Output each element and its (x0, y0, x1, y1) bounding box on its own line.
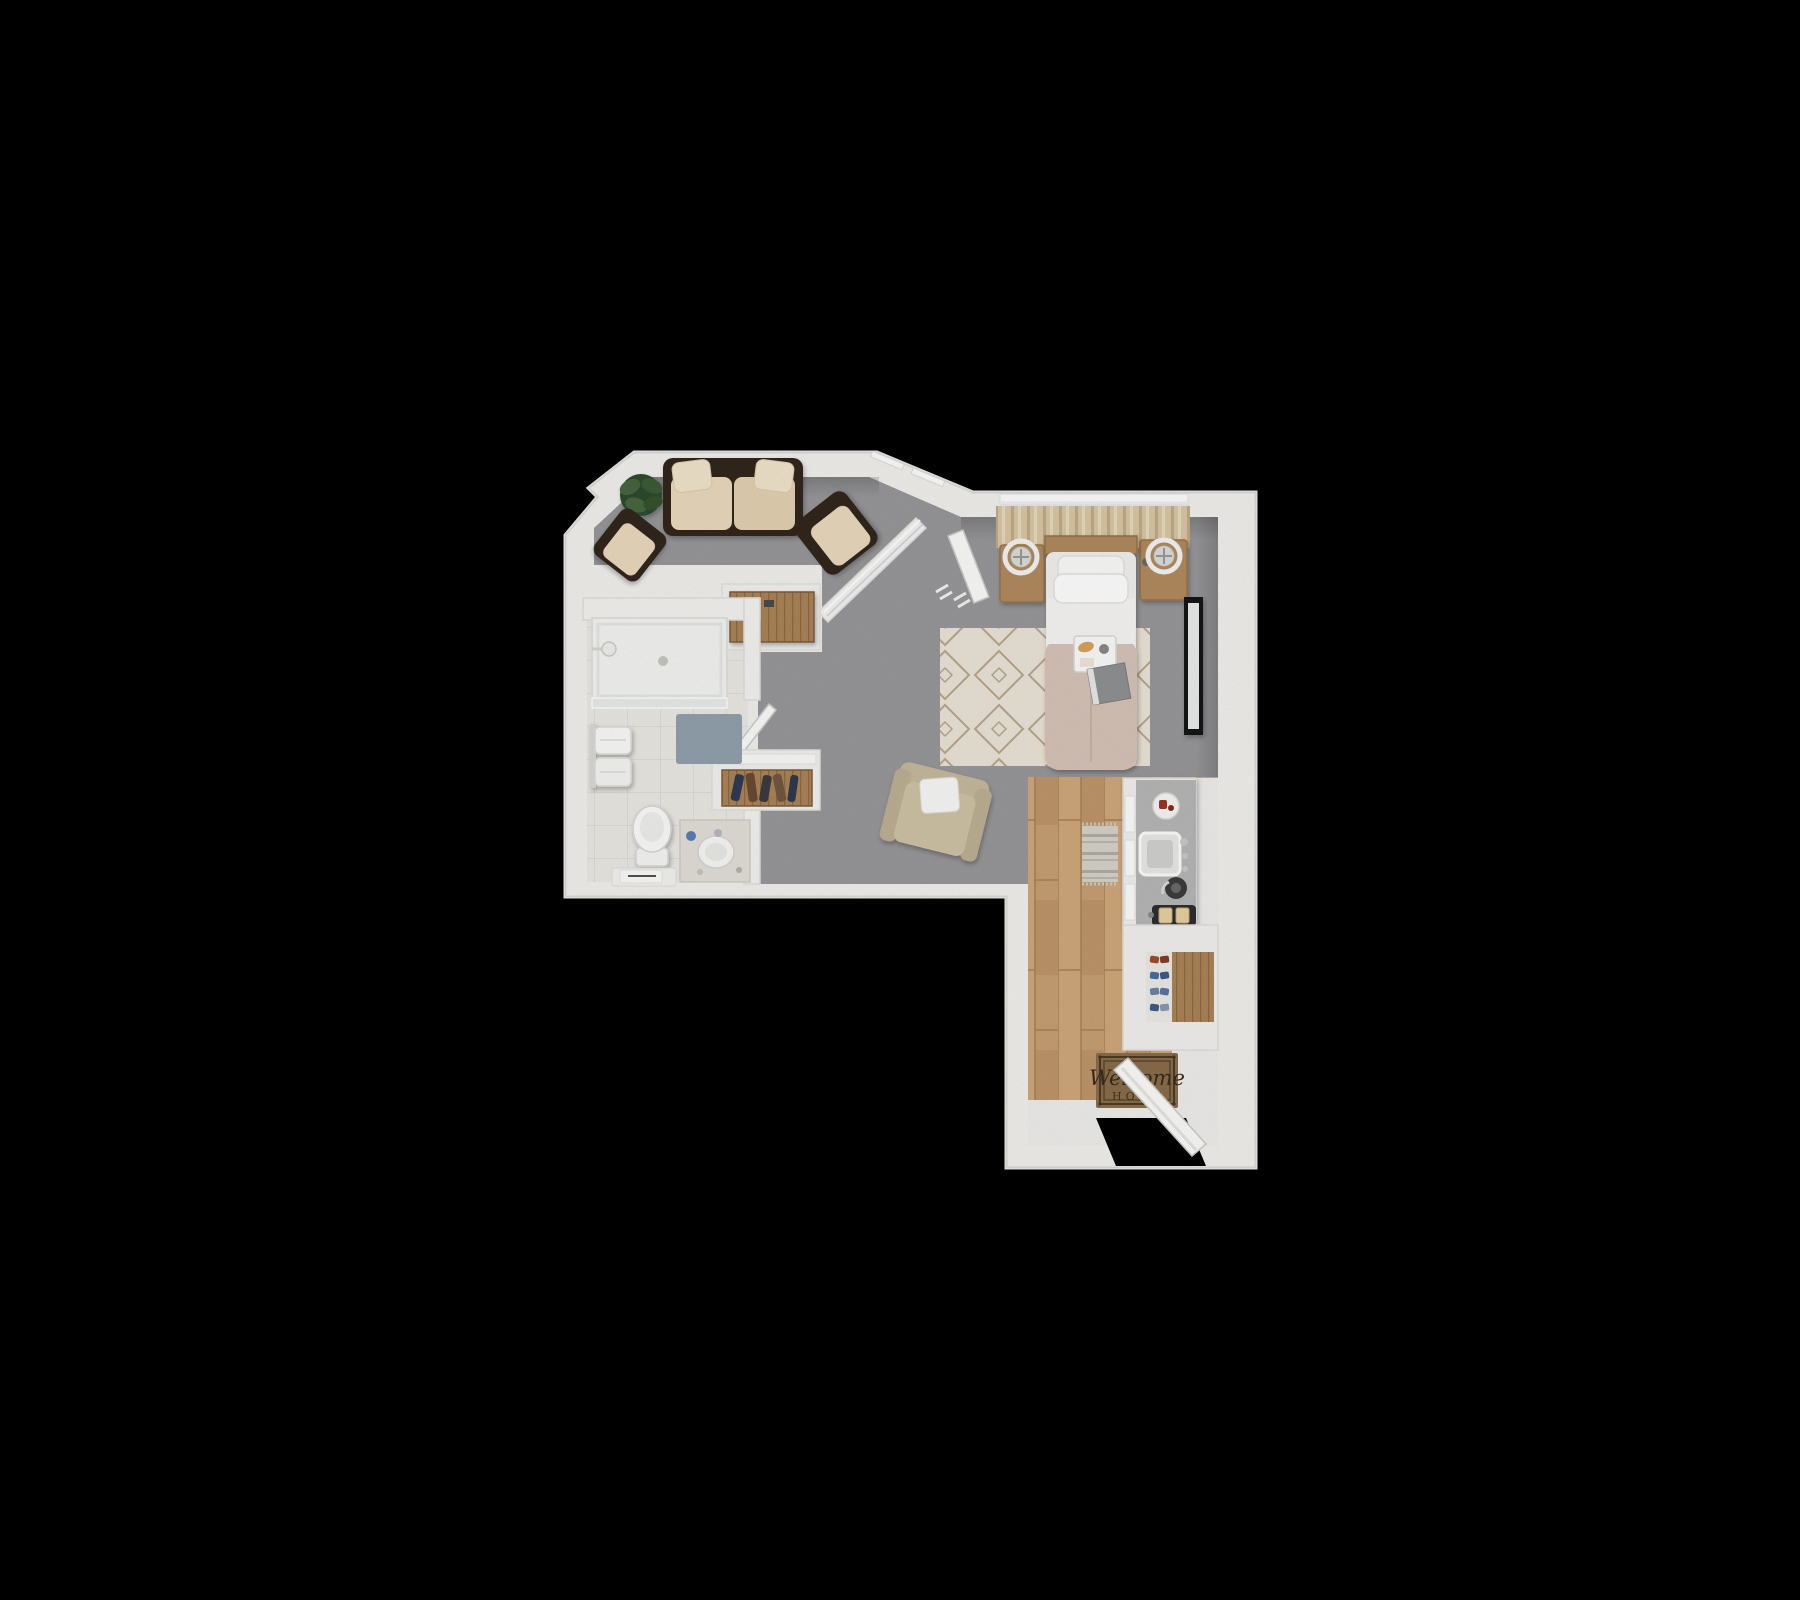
floor-plan-render: Welcome HOME (0, 0, 1800, 1600)
